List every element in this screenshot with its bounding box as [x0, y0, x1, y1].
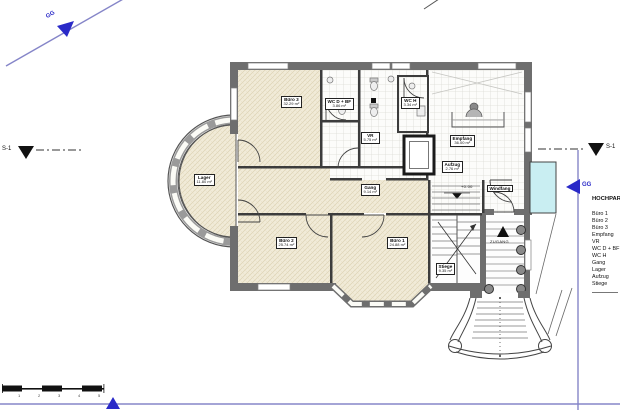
room-label-wcd: WC D + BF3.86 m² — [325, 98, 354, 110]
room-label-buero2: Büro 225.74 m² — [276, 237, 297, 249]
s1-triangle-right-icon — [588, 143, 604, 156]
legend-item: Empfang — [592, 232, 620, 239]
s1-triangle-left-icon — [18, 146, 34, 159]
gg-arrow-bottom-icon — [106, 397, 120, 409]
s1-label-left: S-1 — [2, 146, 11, 152]
scale-tick: 4 — [78, 393, 80, 398]
gg-arrow-right-icon — [566, 179, 580, 194]
scale-tick: 2 — [38, 393, 40, 398]
room-label-wch: WC H3.34 m² — [401, 97, 420, 109]
scale-tick: 1 — [18, 393, 20, 398]
scale-bar — [2, 384, 104, 393]
s1-label-right: S-1 — [606, 144, 615, 150]
highlighted-area — [530, 162, 556, 213]
room-label-buero3: Büro 332.29 m² — [281, 96, 302, 108]
legend: HOCHPARTERRE Büro 1 Büro 2 Büro 3 Empfan… — [592, 196, 620, 293]
zugang-label: ZUGANG — [490, 239, 509, 244]
floor-plan-sheet: Büro 332.29 m² WC D + BF3.86 m² WC H3.34… — [0, 0, 620, 410]
legend-item: Stiege — [592, 281, 620, 288]
legend-item: Büro 2 — [592, 218, 620, 225]
room-label-empfang: Empfang36.00 m² — [450, 135, 475, 147]
site-right — [530, 162, 572, 336]
legend-item: Aufzug — [592, 274, 620, 281]
room-label-windfang: Windfang — [487, 185, 513, 192]
room-label-stiege: Stiege9.35 m² — [436, 263, 455, 275]
legend-item: Büro 1 — [592, 211, 620, 218]
level-label: +0.00 — [461, 184, 473, 189]
legend-item: Lager — [592, 267, 620, 274]
grand-stair — [449, 291, 552, 359]
legend-item: WC D + BF — [592, 246, 620, 253]
legend-item: WC H — [592, 253, 620, 260]
scale-tick: 5 — [98, 393, 100, 398]
leader-line — [424, 0, 439, 9]
room-label-vr: VR5.75 m² — [361, 132, 380, 144]
scale-tick: 3 — [58, 393, 60, 398]
floor-plan-drawing — [0, 0, 620, 410]
room-label-aufzug: Aufzug2.76 m² — [442, 161, 463, 173]
legend-item: VR — [592, 239, 620, 246]
legend-item: Büro 3 — [592, 225, 620, 232]
gg-label-right: GG — [582, 182, 591, 188]
legend-divider — [592, 292, 618, 293]
room-label-gang: Gang9.14 m² — [361, 184, 380, 196]
room-label-buero1: Büro 124.88 m² — [387, 237, 408, 249]
legend-item: Gang — [592, 260, 620, 267]
legend-title: HOCHPARTERRE — [592, 196, 620, 202]
room-label-lager: Lager11.80 m² — [194, 174, 215, 186]
